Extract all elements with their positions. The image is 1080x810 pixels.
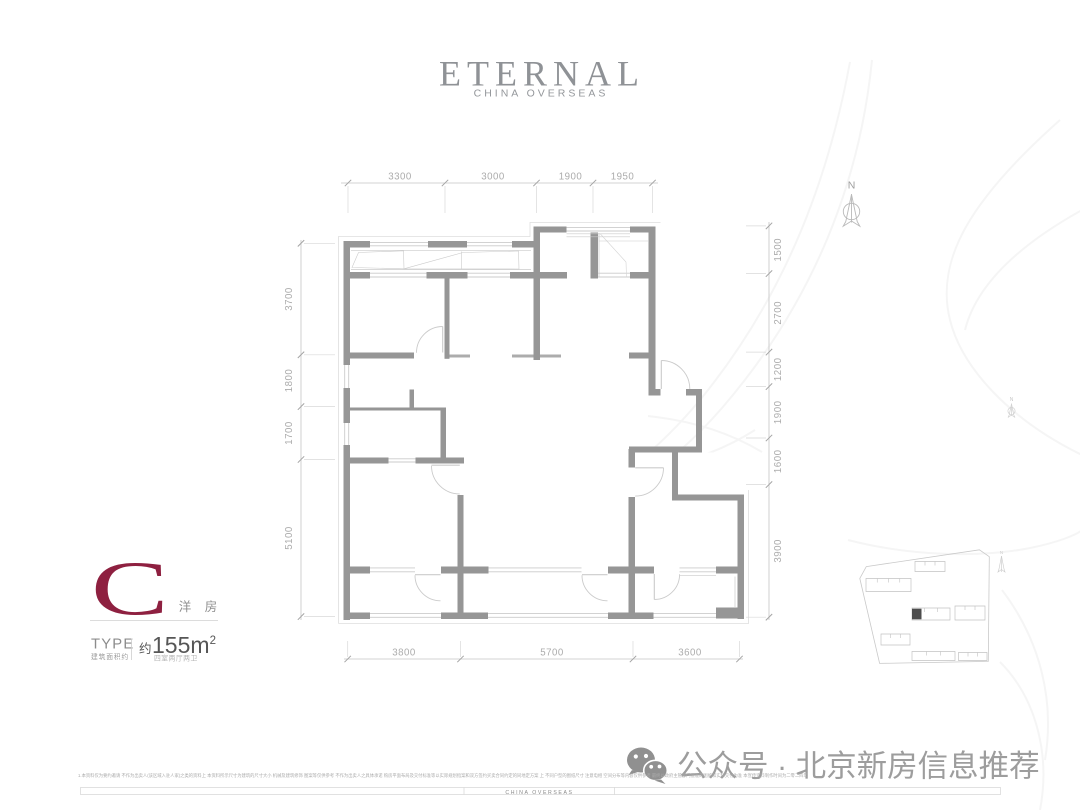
svg-text:1800: 1800	[284, 369, 295, 393]
svg-text:1500: 1500	[773, 238, 784, 262]
svg-text:3900: 3900	[773, 539, 784, 563]
svg-text:3600: 3600	[678, 648, 702, 659]
svg-text:CHINA OVERSEAS: CHINA OVERSEAS	[505, 790, 573, 796]
svg-text:1700: 1700	[284, 421, 295, 445]
svg-text:1900: 1900	[559, 172, 583, 183]
svg-text:C: C	[91, 546, 169, 631]
svg-text:5700: 5700	[540, 648, 564, 659]
svg-text:2700: 2700	[773, 301, 784, 325]
svg-text:3000: 3000	[481, 172, 505, 183]
svg-text:3300: 3300	[388, 172, 412, 183]
svg-text:3800: 3800	[392, 648, 416, 659]
svg-text:1950: 1950	[611, 172, 635, 183]
svg-text:四室两厅两卫: 四室两厅两卫	[154, 653, 198, 662]
svg-text:N: N	[1000, 550, 1003, 555]
svg-text:1600: 1600	[773, 449, 784, 473]
svg-text:CHINA OVERSEAS: CHINA OVERSEAS	[474, 88, 609, 100]
svg-text:建筑面积约: 建筑面积约	[91, 652, 129, 661]
svg-text:TYPE: TYPE	[91, 637, 134, 653]
svg-text:5100: 5100	[284, 526, 295, 550]
svg-text:1900: 1900	[773, 400, 784, 424]
svg-text:3700: 3700	[284, 287, 295, 311]
svg-text:洋 房: 洋 房	[179, 599, 222, 614]
svg-text:1200: 1200	[773, 357, 784, 381]
svg-text:N: N	[848, 180, 856, 192]
svg-text:N: N	[1010, 397, 1014, 403]
svg-text:公众号 · 北京新房信息推荐: 公众号 · 北京新房信息推荐	[677, 750, 1040, 784]
svg-text:1.本资料仅为要约邀请 不作为出卖人(该区域入驻人家)之类的: 1.本资料仅为要约邀请 不作为出卖人(该区域入驻人家)之类的资料上 本资料所示尺…	[78, 772, 808, 779]
